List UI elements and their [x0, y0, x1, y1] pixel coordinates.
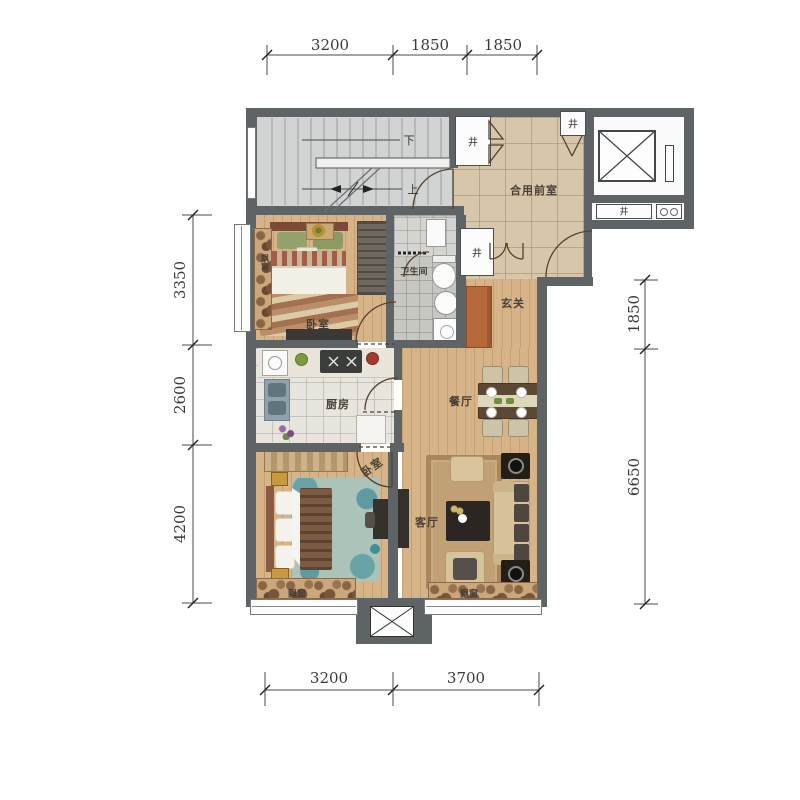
- wall: [388, 452, 398, 607]
- sofa-cushion: [514, 484, 529, 502]
- bay-window-frame: [250, 599, 358, 615]
- label-shaft: 井: [619, 205, 628, 218]
- washer-door: [440, 325, 454, 339]
- sink-basin: [268, 383, 286, 397]
- green-dish: [506, 398, 514, 404]
- speaker: [501, 453, 530, 479]
- flower-decor: [278, 424, 296, 440]
- nightstand: [271, 472, 288, 486]
- wall: [246, 340, 358, 348]
- dining-chair: [482, 366, 503, 384]
- bay-window-frame: [424, 599, 542, 615]
- wall: [390, 443, 404, 452]
- bay-window-rocks: [254, 228, 272, 330]
- dining-chair: [482, 419, 503, 437]
- dim-left-3: 4200: [171, 505, 189, 543]
- dining-chair: [508, 419, 529, 437]
- wall: [537, 277, 547, 607]
- wall: [584, 203, 592, 286]
- bay-window-mullion: [241, 226, 242, 330]
- label-shaft: 井: [568, 116, 578, 131]
- toilet-bowl: [432, 263, 456, 289]
- red-dish: [366, 352, 379, 365]
- plate: [516, 407, 527, 418]
- water-heater-dial: [268, 356, 282, 370]
- dim-bottom-1: 3200: [310, 669, 348, 687]
- label-bay-window-bottom-right: 飘窗: [460, 587, 478, 600]
- fridge: [356, 415, 386, 444]
- coffee-cup: [458, 514, 467, 523]
- sofa-cushion: [514, 524, 529, 542]
- wall: [246, 443, 361, 452]
- teal-ball: [370, 544, 380, 554]
- wall: [246, 206, 464, 215]
- dim-top-1: 3200: [311, 36, 349, 54]
- sofa-cushion: [514, 504, 529, 522]
- wall: [684, 108, 694, 229]
- label-front-room: 合用前室: [510, 182, 558, 198]
- wall: [386, 215, 394, 348]
- bed-blanket: [300, 488, 332, 570]
- vegetable-bowl: [295, 353, 308, 366]
- wall: [584, 195, 684, 203]
- label-bedroom-top: 卧室: [306, 316, 330, 332]
- dim-left-2: 2600: [171, 376, 189, 414]
- stairwell-floor: [257, 117, 453, 208]
- bay-window-mullion: [426, 606, 540, 607]
- label-bay-window-left: 飘窗: [260, 254, 271, 270]
- stairwell-window: [247, 127, 256, 199]
- label-stairs-up: 上: [408, 181, 419, 197]
- dim-right-2: 6650: [625, 458, 643, 496]
- plant-pot: [312, 224, 325, 237]
- toilet-tank: [432, 255, 456, 263]
- wall: [246, 452, 256, 607]
- wall: [246, 347, 256, 452]
- green-dish: [494, 398, 502, 404]
- sink-basin: [268, 401, 286, 415]
- dining-chair: [508, 366, 529, 384]
- plate: [486, 407, 497, 418]
- label-shaft: 井: [468, 134, 478, 149]
- armchair-cushion: [453, 558, 477, 580]
- label-living: 客厅: [415, 514, 439, 530]
- shoe-cabinet: [466, 286, 492, 348]
- dim-top-2: 1850: [411, 36, 449, 54]
- sofa-armrest: [493, 481, 515, 492]
- plate: [516, 387, 527, 398]
- label-bathroom: 卫生间: [400, 265, 427, 278]
- dim-bottom-2: 3700: [447, 669, 485, 687]
- bed-headboard: [266, 486, 274, 572]
- bathroom-sink: [426, 219, 446, 247]
- round-basin: [434, 291, 458, 315]
- ottoman: [450, 456, 484, 482]
- fixture-dot: [660, 208, 668, 216]
- label-stairs-down: 下: [404, 132, 415, 148]
- bay-window-rocks: [428, 582, 538, 599]
- floor-plan: 3200 1850 1850 3200 3700 3350 2600 4200 …: [0, 0, 800, 800]
- label-shaft: 井: [472, 245, 482, 260]
- wall: [394, 340, 464, 348]
- plate: [486, 387, 497, 398]
- dim-top-3: 1850: [484, 36, 522, 54]
- dim-right-1: 1850: [625, 295, 643, 333]
- label-entrance: 玄关: [501, 295, 525, 311]
- fixture-dot: [670, 208, 678, 216]
- label-kitchen: 厨房: [326, 396, 350, 412]
- wardrobe: [357, 221, 387, 295]
- desk-chair: [365, 512, 375, 528]
- label-bay-window-bottom-left: 飘窗: [288, 587, 306, 600]
- label-dining: 餐厅: [449, 393, 473, 409]
- wall: [394, 348, 402, 380]
- wall: [584, 220, 694, 229]
- bay-window-mullion: [252, 606, 356, 607]
- wardrobe: [264, 451, 348, 472]
- elevator-panel: [665, 145, 674, 182]
- dim-left-1: 3350: [171, 261, 189, 299]
- elevator-car: [598, 130, 656, 182]
- table-plant: [450, 505, 464, 515]
- bay-window-frame: [234, 224, 251, 332]
- duct-interior: [370, 606, 414, 637]
- cooktop: [320, 350, 362, 373]
